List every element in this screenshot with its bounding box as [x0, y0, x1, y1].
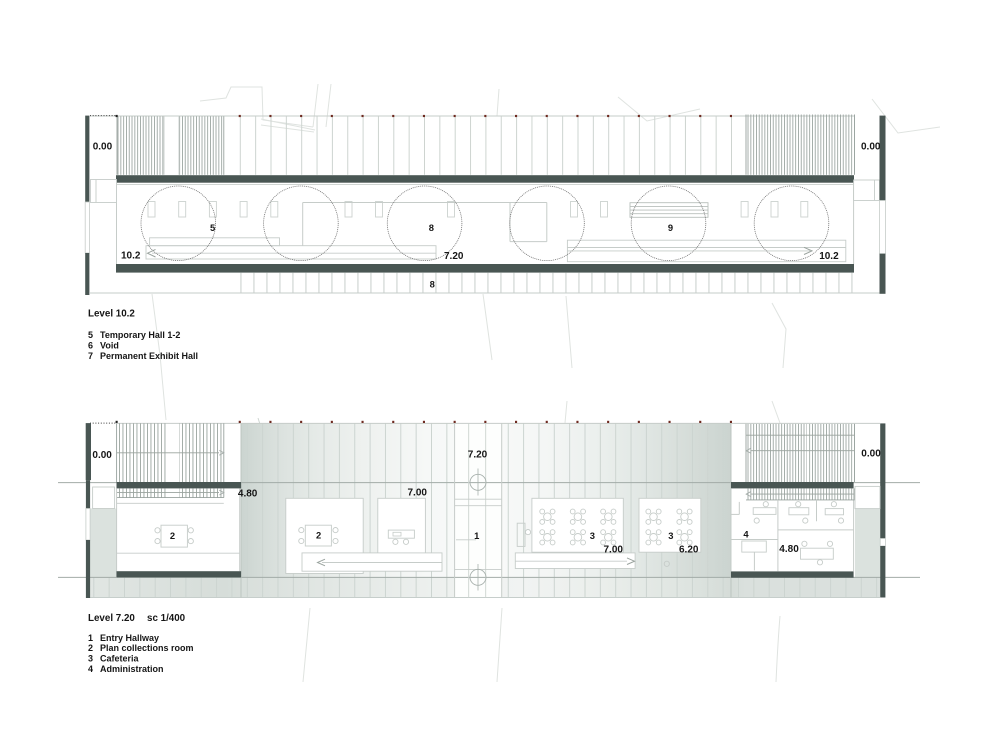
- svg-text:Permanent Exhibit Hall: Permanent Exhibit Hall: [100, 351, 198, 361]
- svg-text:Level 7.20: Level 7.20: [88, 613, 135, 624]
- svg-text:7.20: 7.20: [444, 251, 464, 262]
- svg-text:0.00: 0.00: [93, 141, 113, 152]
- svg-text:Void: Void: [100, 341, 119, 351]
- svg-text:8: 8: [429, 222, 434, 233]
- svg-text:2: 2: [316, 530, 321, 541]
- svg-text:Temporary Hall 1-2: Temporary Hall 1-2: [100, 330, 180, 340]
- svg-text:Cafeteria: Cafeteria: [100, 654, 140, 664]
- svg-text:0.00: 0.00: [861, 449, 881, 460]
- svg-text:0.00: 0.00: [861, 141, 881, 152]
- svg-text:Administration: Administration: [100, 664, 164, 674]
- svg-text:7: 7: [88, 351, 93, 361]
- svg-text:Plan collections room: Plan collections room: [100, 643, 194, 653]
- svg-text:5: 5: [88, 330, 93, 340]
- svg-text:6: 6: [88, 341, 93, 351]
- svg-text:sc 1/400: sc 1/400: [147, 613, 186, 624]
- svg-text:10.2: 10.2: [121, 251, 141, 262]
- svg-text:7.00: 7.00: [604, 545, 624, 556]
- svg-text:10.2: 10.2: [819, 251, 839, 262]
- svg-text:4: 4: [88, 664, 93, 674]
- svg-text:6.20: 6.20: [679, 545, 699, 556]
- svg-text:2: 2: [170, 530, 175, 541]
- svg-text:4.80: 4.80: [779, 544, 799, 555]
- svg-text:Level 10.2: Level 10.2: [88, 309, 135, 320]
- svg-text:3: 3: [88, 654, 93, 664]
- svg-text:9: 9: [668, 222, 673, 233]
- svg-text:1: 1: [88, 633, 93, 643]
- svg-text:7.00: 7.00: [408, 487, 428, 498]
- svg-text:1: 1: [474, 530, 479, 541]
- svg-text:4.80: 4.80: [238, 489, 258, 500]
- svg-text:4: 4: [743, 529, 749, 540]
- svg-text:Entry Hallway: Entry Hallway: [100, 633, 159, 643]
- svg-text:3: 3: [668, 530, 673, 541]
- svg-text:3: 3: [590, 530, 595, 541]
- svg-text:5: 5: [210, 222, 215, 233]
- svg-text:8: 8: [430, 279, 435, 290]
- svg-text:0.00: 0.00: [92, 450, 112, 461]
- svg-text:2: 2: [88, 643, 93, 653]
- svg-text:7.20: 7.20: [468, 449, 488, 460]
